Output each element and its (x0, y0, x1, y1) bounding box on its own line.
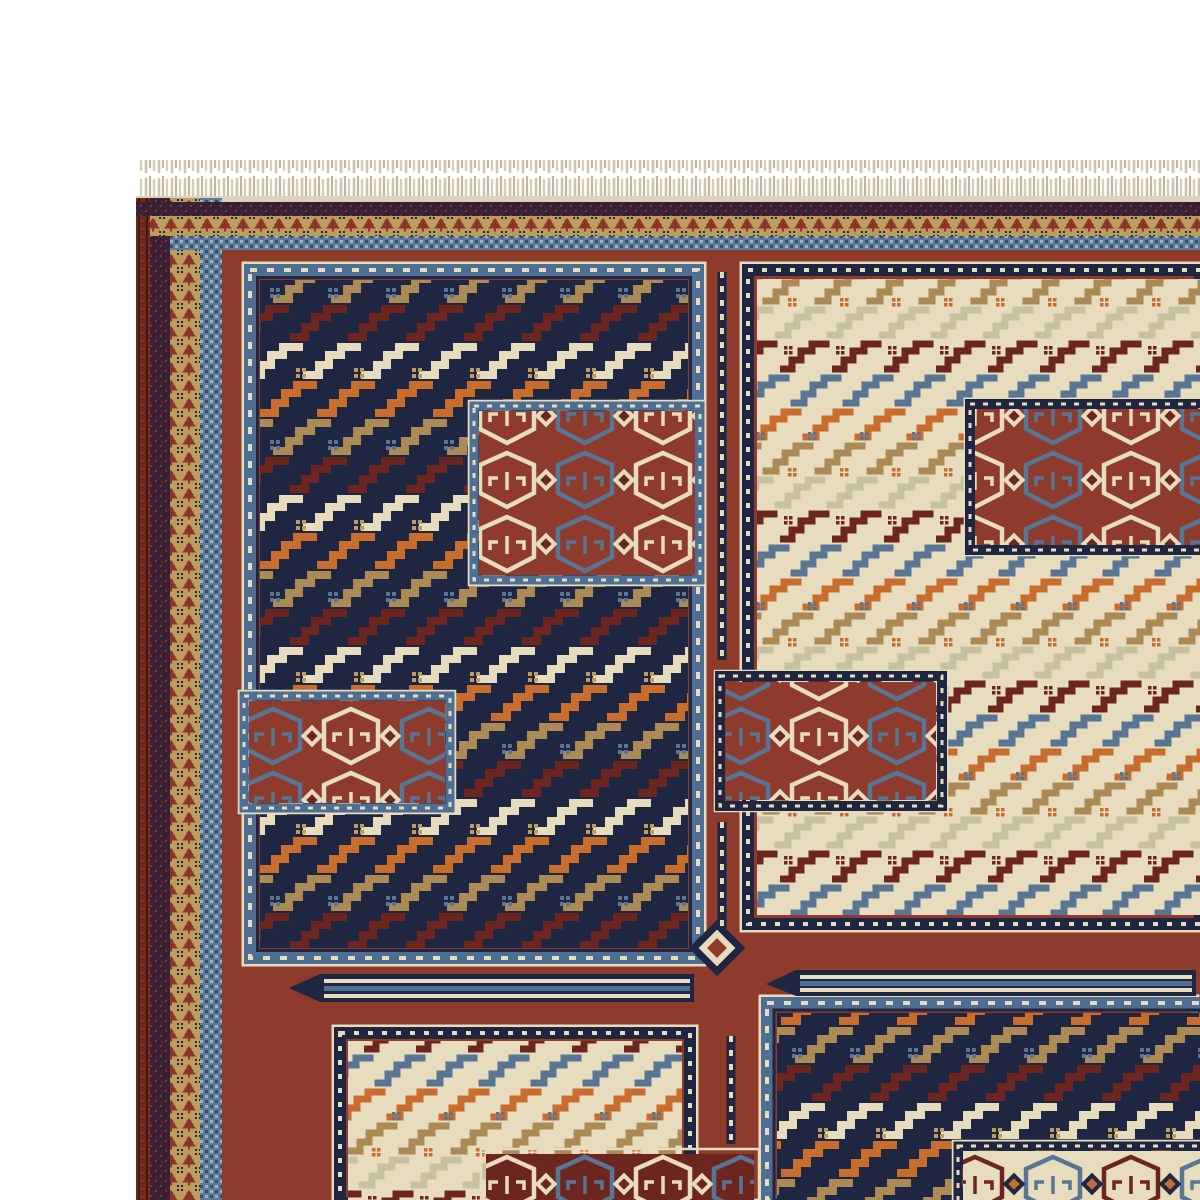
fringe (140, 160, 1200, 202)
left-checker-band (150, 198, 170, 1200)
rug-photograph (0, 0, 1200, 1200)
panel-cream-top-right (741, 263, 1200, 931)
medallion-box-g (953, 1141, 1200, 1200)
medallion-box-b (239, 691, 455, 813)
medallion-box-f (481, 1149, 759, 1200)
comb-bar-left (289, 974, 694, 1002)
medallion-box-d (715, 671, 947, 811)
left-guard-borders (136, 198, 222, 1200)
panel-navy-top-left (243, 263, 705, 965)
top-edge-cord (136, 196, 1200, 202)
rug-corner-image (0, 0, 1200, 1200)
comb-bar-right (766, 970, 1196, 996)
cream-zigzag-field (757, 279, 1200, 915)
navy-zigzag-field (260, 280, 688, 948)
left-selvedge (136, 198, 150, 1200)
left-blue-band (200, 198, 222, 1200)
top-checker-band (136, 202, 1200, 216)
medallion-box-a (469, 401, 705, 585)
left-gold-band (170, 198, 200, 1200)
medallion-box-c (965, 399, 1200, 555)
top-gold-band (150, 216, 1200, 236)
top-guard-borders (136, 202, 1200, 250)
rug-body (136, 196, 1200, 1200)
top-blue-band (170, 236, 1200, 250)
